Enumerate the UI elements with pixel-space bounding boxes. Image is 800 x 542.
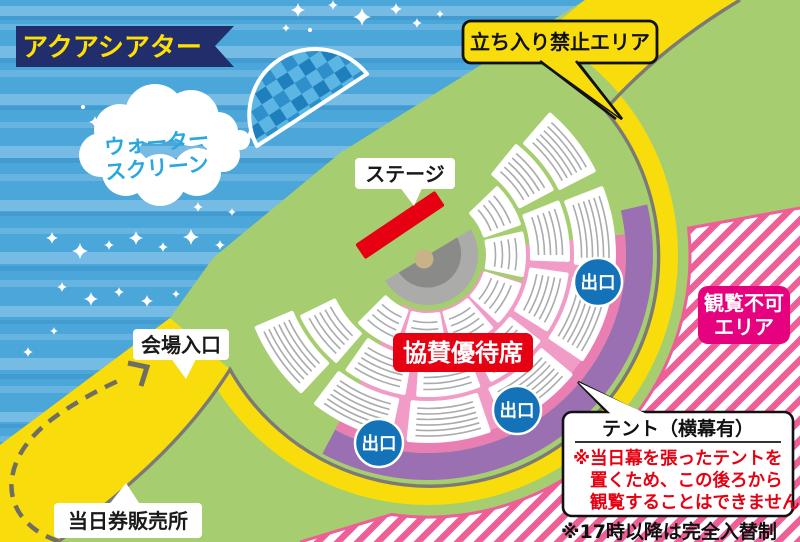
no-view-badge-line2: エリア	[714, 315, 774, 339]
tent-note-line3: 観覧することはできません	[590, 492, 799, 513]
tent-callout-title: テント（横幕有）	[602, 417, 754, 440]
turnover-footnote: ※17時以降は完全入替制	[561, 520, 777, 542]
exit-label: 出口	[581, 273, 616, 294]
exit-label: 出口	[362, 434, 397, 455]
title-banner: アクアシアター	[16, 26, 234, 67]
water-screen-label: ウォーター スクリーン	[102, 127, 212, 185]
exit-badge-center: 出口	[493, 386, 541, 434]
exit-label: 出口	[500, 401, 535, 422]
sponsor-seats-label: 協賛優待席	[393, 333, 533, 372]
seat-block	[487, 233, 524, 275]
no-view-badge: 観覧不可 エリア	[698, 286, 790, 344]
pool-hub	[415, 250, 434, 269]
aqua-theater-map: 出口 出口 出口 協賛優待席 テント（横幕有） ※当日幕を張ったテントを 置くた…	[0, 0, 800, 542]
no-entry-callout-text: 立ち入り禁止エリア	[470, 30, 650, 54]
sponsor-seats-text: 協賛優待席	[403, 339, 523, 367]
sparkle-dot-icon	[81, 105, 85, 109]
exit-badge-left: 出口	[355, 419, 403, 467]
title-banner-text: アクアシアター	[22, 33, 202, 63]
ticket-callout-text: 当日券販売所	[68, 509, 188, 533]
no-view-badge-line1: 観覧不可	[704, 291, 784, 315]
sparkle-dot-icon	[308, 28, 312, 32]
tent-note-line1: ※当日幕を張ったテントを	[573, 448, 783, 469]
stage-callout-text: ステージ	[365, 162, 445, 186]
entrance-callout-text: 会場入口	[141, 333, 221, 357]
tent-note-line2: 置くため、この後ろから	[590, 470, 783, 491]
exit-badge-right: 出口	[574, 258, 622, 306]
